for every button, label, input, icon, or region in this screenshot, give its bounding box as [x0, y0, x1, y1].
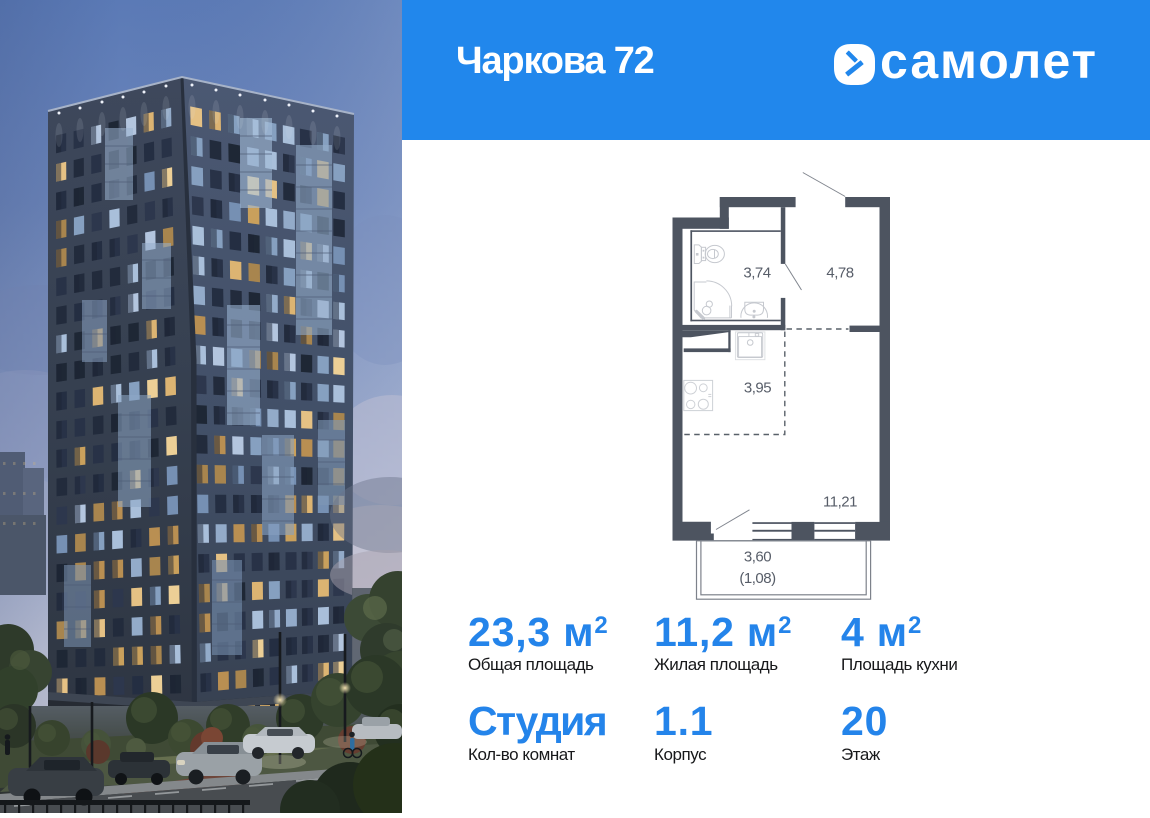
- svg-text:(1,08): (1,08): [739, 570, 776, 587]
- svg-text:4,78: 4,78: [826, 265, 853, 282]
- svg-text:3,95: 3,95: [744, 380, 771, 397]
- svg-text:11,21: 11,21: [823, 494, 857, 511]
- svg-text:3,74: 3,74: [743, 265, 770, 282]
- svg-text:3,60: 3,60: [744, 549, 771, 566]
